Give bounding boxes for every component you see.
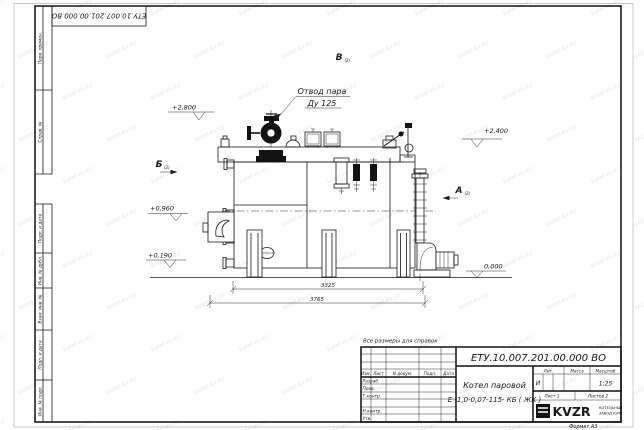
svg-text:kotel-kv.kz: kotel-kv.kz	[282, 207, 315, 228]
svg-text:kotel-kv.kz: kotel-kv.kz	[150, 0, 183, 18]
svg-text:kotel-kv.kz: kotel-kv.kz	[590, 249, 623, 270]
svg-text:kotel-kv.kz: kotel-kv.kz	[106, 375, 139, 396]
svg-text:kotel-kv.kz: kotel-kv.kz	[502, 81, 535, 102]
svg-text:kotel-kv.kz: kotel-kv.kz	[150, 417, 183, 430]
logo-caption-1: КОТЕЛЬНЫЙ	[599, 405, 623, 410]
svg-text:kotel-kv.kz: kotel-kv.kz	[634, 123, 644, 144]
svg-text:3325: 3325	[321, 283, 335, 289]
svg-text:kotel-kv.kz: kotel-kv.kz	[546, 207, 579, 228]
svg-text:kotel-kv.kz: kotel-kv.kz	[150, 333, 183, 354]
instrument-box	[324, 129, 340, 148]
steam-outlet-dn: Ду 125	[307, 99, 337, 108]
svg-text:kotel-kv.kz: kotel-kv.kz	[194, 123, 227, 144]
svg-text:kotel-kv.kz: kotel-kv.kz	[370, 291, 403, 312]
margin-label: Инв. № дубл.	[38, 256, 44, 285]
svg-text:kotel-kv.kz: kotel-kv.kz	[62, 249, 95, 270]
svg-text:kotel-kv.kz: kotel-kv.kz	[590, 81, 623, 102]
svg-text:kotel-kv.kz: kotel-kv.kz	[502, 0, 535, 18]
svg-text:kotel-kv.kz: kotel-kv.kz	[106, 291, 139, 312]
kvzr-logo-icon	[536, 404, 550, 418]
svg-text:kotel-kv.kz: kotel-kv.kz	[62, 81, 95, 102]
designation: ЕТУ.10.007.201.00.000 ВО	[471, 353, 606, 364]
top-equipment	[221, 114, 413, 194]
svg-text:kotel-kv.kz: kotel-kv.kz	[634, 375, 644, 396]
svg-text:kotel-kv.kz: kotel-kv.kz	[150, 81, 183, 102]
svg-text:kotel-kv.kz: kotel-kv.kz	[62, 165, 95, 186]
svg-text:kotel-kv.kz: kotel-kv.kz	[0, 0, 6, 18]
elevation-mark-0960: +0,960	[148, 205, 188, 222]
svg-text:kotel-kv.kz: kotel-kv.kz	[414, 81, 447, 102]
svg-text:kotel-kv.kz: kotel-kv.kz	[238, 81, 271, 102]
fan-base	[414, 270, 450, 277]
svg-text:kotel-kv.kz: kotel-kv.kz	[414, 0, 447, 18]
svg-text:kotel-kv.kz: kotel-kv.kz	[106, 123, 139, 144]
svg-text:Б: Б	[156, 160, 163, 170]
col-podp: Подп.	[424, 371, 437, 376]
instrument-box	[305, 129, 321, 148]
margin-label: Подп. и дата	[38, 214, 44, 244]
svg-text:+0,190: +0,190	[148, 252, 172, 260]
svg-text:kotel-kv.kz: kotel-kv.kz	[238, 417, 271, 430]
level-gauge	[353, 158, 360, 192]
svg-text:kotel-kv.kz: kotel-kv.kz	[238, 165, 271, 186]
col-data: Дата	[442, 371, 454, 376]
margin-label: Взам. инв. №	[38, 294, 44, 324]
svg-text:kotel-kv.kz: kotel-kv.kz	[106, 39, 139, 60]
svg-text:kotel-kv.kz: kotel-kv.kz	[370, 123, 403, 144]
svg-text:kotel-kv.kz: kotel-kv.kz	[282, 39, 315, 60]
svg-text:kotel-kv.kz: kotel-kv.kz	[458, 207, 491, 228]
burner	[203, 212, 234, 242]
fan-motor	[436, 252, 454, 268]
sheets-info: Листов 2	[587, 394, 608, 400]
sheet-info: Лист 1	[544, 394, 560, 400]
svg-text:kotel-kv.kz: kotel-kv.kz	[18, 207, 51, 228]
svg-text:kotel-kv.kz: kotel-kv.kz	[590, 165, 623, 186]
scale-value: 1:25	[599, 381, 613, 388]
svg-text:А: А	[455, 186, 463, 196]
svg-text:kotel-kv.kz: kotel-kv.kz	[18, 39, 51, 60]
col-ndoc: N докум.	[393, 371, 412, 376]
row-tkontr: Т.контр.	[363, 394, 382, 400]
svg-text:kotel-kv.kz: kotel-kv.kz	[0, 165, 6, 186]
svg-text:kotel-kv.kz: kotel-kv.kz	[634, 39, 644, 60]
svg-text:kotel-kv.kz: kotel-kv.kz	[634, 291, 644, 312]
product-name-line1: Котел паровой	[463, 381, 526, 390]
svg-text:kotel-kv.kz: kotel-kv.kz	[326, 0, 359, 18]
svg-text:kotel-kv.kz: kotel-kv.kz	[238, 0, 271, 18]
svg-text:kotel-kv.kz: kotel-kv.kz	[458, 39, 491, 60]
standpipe	[404, 123, 413, 157]
steam-platform	[218, 147, 400, 162]
steam-valve	[247, 114, 286, 162]
svg-text:kotel-kv.kz: kotel-kv.kz	[62, 417, 95, 430]
elevation-mark-0000: 0,000	[466, 263, 506, 278]
svg-text:В: В	[336, 53, 343, 63]
svg-text:0,000: 0,000	[484, 263, 503, 271]
svg-text:kotel-kv.kz: kotel-kv.kz	[0, 333, 6, 354]
mass-header: Масса	[570, 369, 584, 374]
svg-text:(2): (2)	[465, 191, 471, 196]
scale-header: Масштаб	[596, 369, 616, 374]
svg-text:kotel-kv.kz: kotel-kv.kz	[282, 123, 315, 144]
row-utv: Утв.	[363, 416, 372, 422]
view-marker-v-top: В (2)	[336, 53, 351, 63]
format-label: Формат А3	[569, 424, 597, 430]
svg-text:kotel-kv.kz: kotel-kv.kz	[502, 417, 535, 430]
level-gauge	[370, 158, 377, 192]
margin-label: Подп. и дата	[38, 340, 44, 370]
row-nkontr: Н.контр.	[363, 409, 382, 415]
margin-label: Инв. № подл.	[38, 386, 44, 416]
col-list: Лист	[372, 371, 384, 376]
title-block: ЕТУ.10.007.201.00.000 ВО Котел паровой Е…	[361, 347, 623, 422]
svg-text:+0,960: +0,960	[150, 205, 174, 213]
svg-text:kotel-kv.kz: kotel-kv.kz	[0, 249, 6, 270]
steam-outlet-label: Отвод пара	[298, 87, 347, 96]
elevation-mark-2800: +2,800	[168, 104, 214, 121]
svg-text:kotel-kv.kz: kotel-kv.kz	[370, 207, 403, 228]
svg-text:+2,400: +2,400	[484, 127, 508, 135]
svg-text:+2,800: +2,800	[172, 104, 196, 112]
margin-label: Перв. примен.	[38, 32, 44, 64]
svg-text:kotel-kv.kz: kotel-kv.kz	[194, 375, 227, 396]
svg-text:kotel-kv.kz: kotel-kv.kz	[194, 39, 227, 60]
svg-text:kotel-kv.kz: kotel-kv.kz	[502, 165, 535, 186]
view-marker-a-right: А (2)	[443, 186, 471, 200]
svg-text:kotel-kv.kz: kotel-kv.kz	[106, 207, 139, 228]
kvzr-logo-text: KVZR	[553, 404, 591, 419]
svg-text:kotel-kv.kz: kotel-kv.kz	[282, 375, 315, 396]
svg-text:3765: 3765	[310, 297, 324, 303]
svg-text:kotel-kv.kz: kotel-kv.kz	[502, 249, 535, 270]
logo-caption-2: ЗАВОД РЭП	[599, 412, 621, 416]
support-legs	[247, 230, 410, 277]
reference-note: Все размеры для справок	[363, 339, 438, 345]
svg-text:(2): (2)	[164, 165, 170, 170]
svg-text:kotel-kv.kz: kotel-kv.kz	[370, 39, 403, 60]
exhaust-fan	[414, 243, 458, 277]
lit-value: И	[536, 380, 541, 387]
rear-shoulder	[400, 155, 415, 162]
svg-text:kotel-kv.kz: kotel-kv.kz	[634, 207, 644, 228]
row-razrab: Разраб.	[363, 379, 380, 385]
svg-text:kotel-kv.kz: kotel-kv.kz	[326, 417, 359, 430]
svg-text:kotel-kv.kz: kotel-kv.kz	[590, 333, 623, 354]
doc-number-top: ЕТУ.10.007.201.00.000 ВО	[51, 12, 146, 20]
svg-text:kotel-kv.kz: kotel-kv.kz	[0, 417, 6, 430]
col-izm: Изм.	[361, 371, 371, 376]
svg-text:kotel-kv.kz: kotel-kv.kz	[546, 39, 579, 60]
margin-label: Справ. №	[38, 121, 44, 142]
row-prov: Пров.	[363, 386, 376, 392]
svg-text:kotel-kv.kz: kotel-kv.kz	[502, 333, 535, 354]
svg-text:kotel-kv.kz: kotel-kv.kz	[590, 0, 623, 18]
svg-text:kotel-kv.kz: kotel-kv.kz	[546, 375, 579, 396]
svg-text:kotel-kv.kz: kotel-kv.kz	[458, 291, 491, 312]
product-name-line2: Е -1,0-0,07-115- КБ ( ЖК )	[448, 396, 542, 404]
lit-header: Лит.	[543, 369, 554, 374]
svg-text:kotel-kv.kz: kotel-kv.kz	[546, 123, 579, 144]
svg-text:kotel-kv.kz: kotel-kv.kz	[62, 333, 95, 354]
drawing-sheet: kotel-kv.kzkotel-kv.kzkotel-kv.kzkotel-k…	[0, 0, 644, 430]
steam-outlet-annotation: Отвод пара Ду 125	[274, 87, 351, 120]
svg-text:kotel-kv.kz: kotel-kv.kz	[238, 333, 271, 354]
svg-text:kotel-kv.kz: kotel-kv.kz	[18, 123, 51, 144]
svg-text:kotel-kv.kz: kotel-kv.kz	[18, 375, 51, 396]
svg-text:kotel-kv.kz: kotel-kv.kz	[414, 417, 447, 430]
svg-text:kotel-kv.kz: kotel-kv.kz	[0, 81, 6, 102]
leader-line	[276, 97, 296, 121]
svg-text:(2): (2)	[345, 58, 351, 63]
svg-text:kotel-kv.kz: kotel-kv.kz	[326, 333, 359, 354]
svg-text:kotel-kv.kz: kotel-kv.kz	[18, 291, 51, 312]
svg-text:kotel-kv.kz: kotel-kv.kz	[546, 291, 579, 312]
